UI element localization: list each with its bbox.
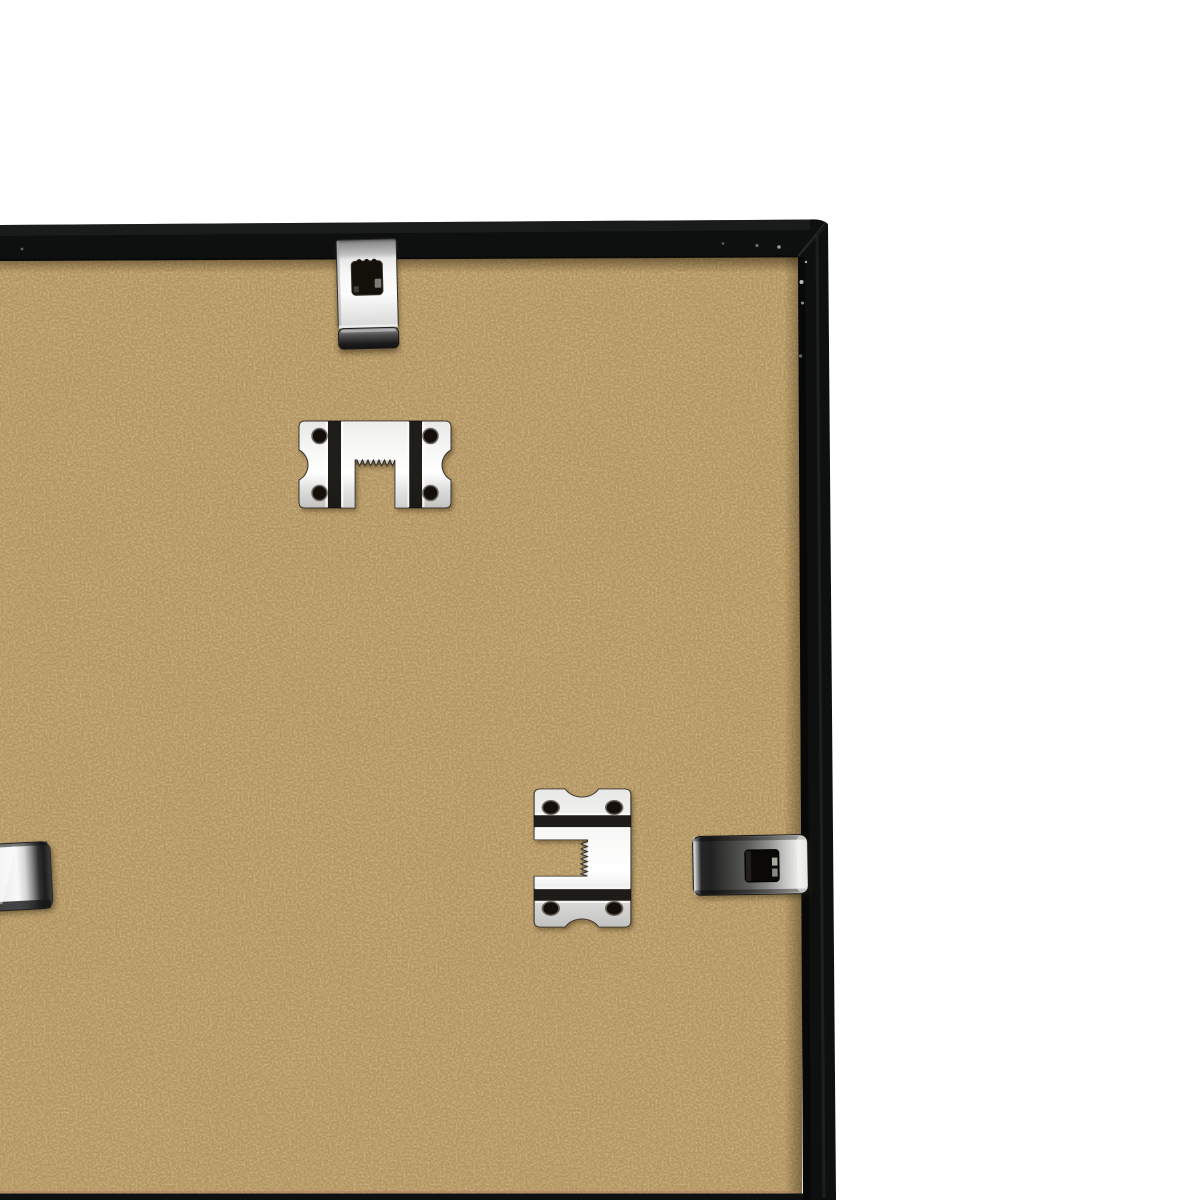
hanger-fold-right bbox=[534, 889, 631, 901]
product-photo bbox=[0, 0, 1200, 1200]
frame-rails bbox=[0, 0, 1200, 1200]
hanger-fold-right bbox=[409, 421, 422, 508]
sawtooth-hanger-horizontal bbox=[298, 420, 452, 509]
sawtooth-hanger-vertical bbox=[533, 788, 632, 928]
hanger-fold-left bbox=[534, 815, 631, 827]
hanger-fold-left bbox=[328, 421, 341, 508]
top-spring-clip bbox=[335, 237, 401, 351]
left-spring-clip-partial bbox=[0, 839, 55, 914]
right-spring-clip bbox=[691, 833, 809, 897]
frame-bottom-strip bbox=[0, 1194, 836, 1200]
